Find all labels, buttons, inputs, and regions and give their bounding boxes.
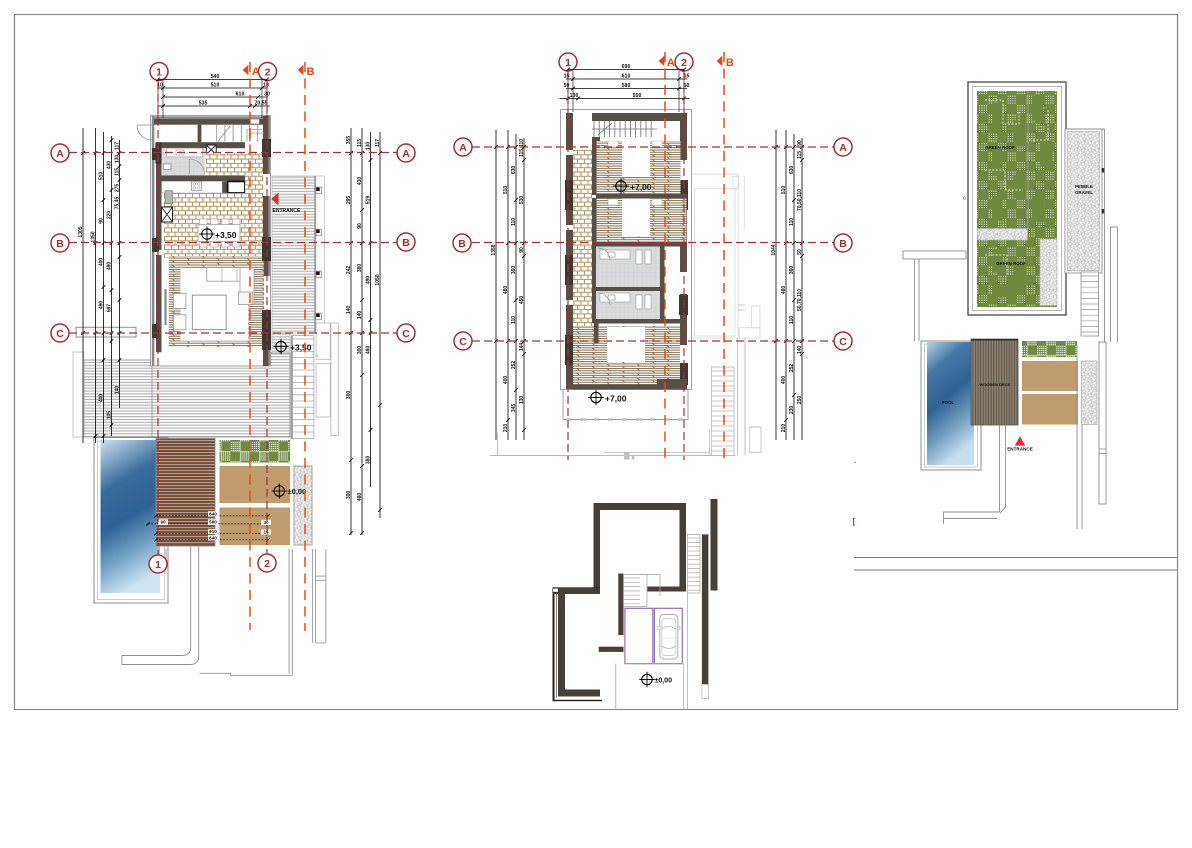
- svg-text:490: 490: [365, 276, 371, 285]
- svg-text:697: 697: [106, 304, 112, 313]
- svg-text:B: B: [402, 237, 410, 249]
- svg-text:117: 117: [114, 142, 120, 150]
- svg-text:630: 630: [511, 166, 517, 175]
- svg-text:ENTRANCE: ENTRANCE: [1007, 447, 1033, 452]
- svg-text:1044: 1044: [771, 244, 777, 255]
- svg-text:220: 220: [106, 211, 112, 220]
- svg-text:242: 242: [346, 266, 352, 275]
- svg-text:690: 690: [622, 64, 631, 70]
- svg-text:C: C: [839, 336, 847, 348]
- svg-text:C: C: [459, 336, 467, 348]
- svg-text:C: C: [402, 328, 410, 340]
- svg-text:519: 519: [365, 196, 371, 205]
- svg-text:110: 110: [789, 316, 795, 324]
- svg-text:540: 540: [211, 74, 220, 80]
- svg-text:490: 490: [98, 301, 104, 310]
- svg-text:GREEN ROOF: GREEN ROOF: [996, 261, 1026, 266]
- svg-text:450: 450: [519, 296, 525, 305]
- svg-text:A: A: [459, 142, 467, 154]
- svg-text:117: 117: [375, 139, 381, 147]
- svg-text:355: 355: [346, 136, 352, 145]
- svg-text:ENTRANCE: ENTRANCE: [273, 208, 301, 214]
- svg-text:510: 510: [781, 186, 787, 195]
- svg-text:430: 430: [357, 177, 363, 186]
- svg-text:140: 140: [797, 346, 803, 355]
- svg-text:115: 115: [797, 151, 803, 159]
- svg-text:360: 360: [789, 266, 795, 275]
- svg-text:400: 400: [98, 394, 104, 403]
- svg-text:70,50,110: 70,50,110: [797, 189, 803, 211]
- svg-text:1: 1: [156, 66, 162, 78]
- svg-text:±0,00: ±0,00: [655, 678, 673, 685]
- svg-text:+3,50: +3,50: [215, 230, 237, 240]
- svg-text:640: 640: [209, 535, 217, 540]
- svg-text:A: A: [252, 66, 260, 78]
- svg-text:610: 610: [209, 529, 217, 534]
- svg-text:90: 90: [519, 247, 525, 253]
- svg-text:550: 550: [633, 93, 642, 99]
- svg-text:18: 18: [263, 83, 269, 89]
- svg-text:1350: 1350: [90, 231, 96, 242]
- svg-text:15: 15: [564, 74, 570, 80]
- svg-text:110: 110: [519, 139, 525, 147]
- svg-text:1: 1: [565, 57, 571, 69]
- svg-text:A: A: [667, 57, 675, 69]
- svg-text:115: 115: [519, 149, 525, 157]
- svg-text:50,70,110: 50,70,110: [797, 289, 803, 311]
- svg-text:210: 210: [781, 424, 787, 433]
- svg-text:580: 580: [622, 83, 631, 89]
- svg-text:130: 130: [570, 93, 579, 99]
- svg-text:B: B: [307, 66, 315, 78]
- svg-text:B: B: [839, 238, 847, 250]
- svg-text:1358: 1358: [491, 244, 497, 255]
- svg-text:380: 380: [357, 264, 363, 273]
- svg-text:15: 15: [263, 530, 269, 535]
- svg-text:252: 252: [789, 364, 795, 373]
- svg-text:70,55: 70,55: [255, 101, 268, 107]
- svg-text:POOL: POOL: [942, 400, 955, 405]
- svg-text:110: 110: [789, 218, 795, 226]
- svg-text:115: 115: [357, 139, 363, 147]
- svg-text:430: 430: [106, 161, 112, 170]
- svg-text:1305: 1305: [78, 226, 84, 237]
- svg-text:C: C: [56, 328, 64, 340]
- svg-text:345: 345: [511, 404, 517, 413]
- svg-text:`: `: [854, 461, 857, 470]
- svg-text:+7,00: +7,00: [605, 394, 627, 404]
- svg-text:110: 110: [511, 316, 517, 324]
- svg-text:275: 275: [114, 184, 120, 193]
- svg-text:480: 480: [503, 286, 509, 295]
- svg-text:252: 252: [511, 361, 517, 370]
- svg-text:230: 230: [789, 406, 795, 415]
- svg-text:360: 360: [511, 266, 517, 275]
- svg-text:2: 2: [681, 57, 687, 69]
- svg-text:380: 380: [365, 456, 371, 465]
- svg-text:250: 250: [797, 396, 803, 405]
- svg-text:130: 130: [365, 142, 371, 151]
- svg-text:140: 140: [357, 311, 363, 320]
- svg-text:1050: 1050: [375, 274, 381, 285]
- svg-text:300: 300: [346, 491, 352, 500]
- svg-text:480: 480: [357, 493, 363, 502]
- svg-text:140: 140: [346, 306, 352, 315]
- svg-text:30: 30: [263, 520, 269, 525]
- svg-text:115: 115: [114, 168, 120, 176]
- svg-text:+3,50: +3,50: [290, 343, 312, 353]
- svg-text:400: 400: [98, 258, 104, 267]
- svg-text:144: 144: [519, 343, 525, 352]
- svg-text:130: 130: [114, 155, 120, 164]
- svg-text:300: 300: [357, 346, 363, 355]
- svg-text:GREEN ROOF: GREEN ROOF: [985, 145, 1015, 150]
- svg-text:510: 510: [503, 186, 509, 195]
- svg-text:+7,00: +7,00: [630, 182, 652, 192]
- svg-text:A: A: [56, 148, 64, 160]
- svg-text:[: [: [853, 517, 856, 526]
- svg-text:400: 400: [781, 376, 787, 385]
- svg-text:560: 560: [209, 519, 217, 524]
- svg-text:90: 90: [160, 519, 166, 524]
- svg-text:400: 400: [503, 376, 509, 385]
- svg-text:B: B: [726, 57, 734, 69]
- svg-text:50: 50: [797, 249, 803, 255]
- svg-text:630: 630: [789, 166, 795, 175]
- svg-text:530: 530: [519, 196, 525, 205]
- svg-text:490: 490: [106, 262, 112, 271]
- svg-text:2: 2: [265, 66, 271, 78]
- svg-text:610: 610: [236, 92, 245, 98]
- svg-text:105: 105: [106, 411, 112, 420]
- svg-text:210: 210: [503, 424, 509, 433]
- svg-text:PEBBLE: PEBBLE: [1075, 184, 1093, 189]
- svg-text:A: A: [402, 148, 410, 160]
- svg-text:GRAVEL: GRAVEL: [1075, 190, 1093, 195]
- svg-text:480: 480: [781, 286, 787, 295]
- svg-text:WOODEN DECK: WOODEN DECK: [980, 382, 1011, 387]
- svg-text:535: 535: [199, 101, 208, 107]
- svg-text:140: 140: [114, 386, 120, 395]
- svg-text:295: 295: [346, 196, 352, 205]
- svg-text:90: 90: [357, 223, 363, 229]
- svg-text:510: 510: [98, 172, 104, 181]
- svg-text:A: A: [839, 142, 847, 154]
- svg-text:640: 640: [209, 511, 217, 516]
- svg-text:±0,00: ±0,00: [288, 487, 307, 496]
- svg-text:130: 130: [519, 396, 525, 405]
- svg-text:610: 610: [622, 74, 631, 80]
- svg-text:110: 110: [511, 218, 517, 226]
- svg-text:510: 510: [211, 83, 220, 89]
- svg-text:300: 300: [346, 391, 352, 400]
- svg-text:90: 90: [98, 218, 104, 224]
- svg-text:B: B: [56, 238, 64, 250]
- svg-text:90: 90: [797, 140, 803, 146]
- svg-text:1: 1: [155, 559, 161, 571]
- svg-text:75,45: 75,45: [114, 197, 120, 210]
- svg-text:2: 2: [264, 558, 270, 570]
- svg-text:50: 50: [564, 83, 570, 89]
- svg-text:B: B: [458, 238, 466, 250]
- svg-text:480: 480: [365, 346, 371, 355]
